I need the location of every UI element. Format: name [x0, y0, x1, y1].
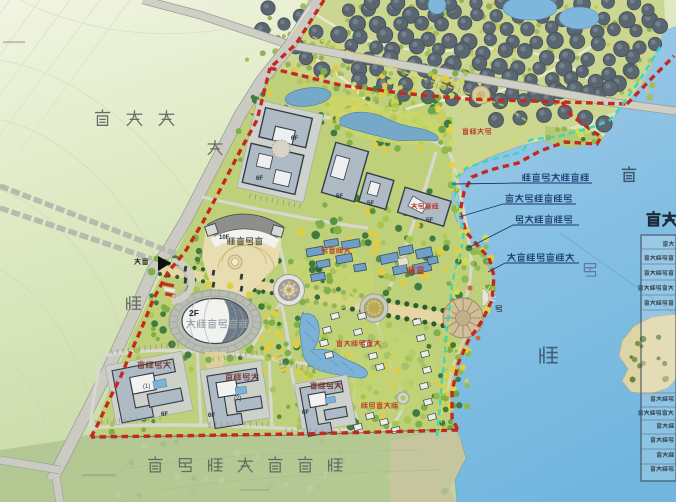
- svg-text:2F: 2F: [189, 308, 199, 318]
- svg-text:10F: 10F: [219, 235, 230, 241]
- svg-text:5F: 5F: [426, 218, 433, 224]
- svg-text:(1): (1): [143, 384, 150, 390]
- svg-text:6F: 6F: [302, 410, 309, 416]
- svg-text:6F: 6F: [256, 176, 263, 182]
- svg-text:5F: 5F: [336, 194, 343, 200]
- svg-text:(2): (2): [234, 396, 241, 402]
- svg-text:5F: 5F: [367, 201, 374, 207]
- svg-text:6F: 6F: [161, 412, 168, 418]
- svg-text:6F: 6F: [208, 413, 215, 419]
- svg-text:6F: 6F: [291, 136, 298, 142]
